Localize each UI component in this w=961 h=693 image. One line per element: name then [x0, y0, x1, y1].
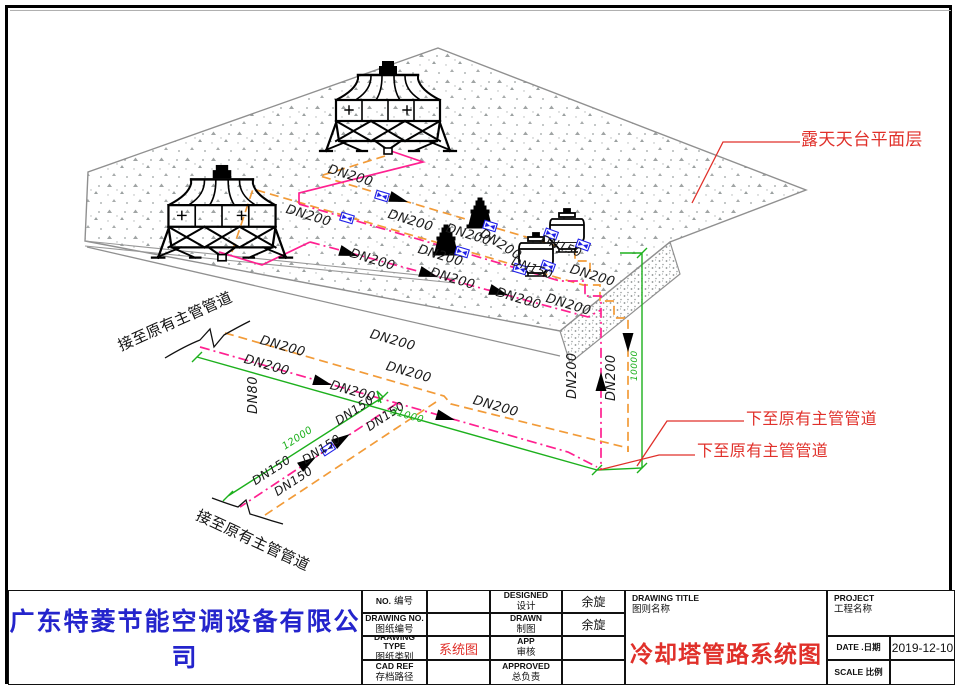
drawing-no-value: [427, 613, 490, 636]
cad-ref-value: [427, 660, 490, 685]
project-cell: PROJECT 工程名称: [827, 590, 955, 636]
drawing-no-label: DRAWING NO. 图纸编号: [362, 613, 427, 636]
date-label: DATE .日期: [827, 636, 890, 660]
pipe-break-symbol: [165, 321, 283, 524]
drawing-title-value: 冷却塔管路系统图: [626, 635, 826, 669]
no-label: NO. 编号: [362, 590, 427, 613]
approved-label: APPROVED 总负责: [490, 660, 562, 685]
drawing-title-cell: DRAWING TITLE 图则名称 冷却塔管路系统图: [625, 590, 827, 685]
drawing-type-label: DRAWING TYPE 图纸类别: [362, 636, 427, 660]
date-value: 2019-12-10: [890, 636, 955, 660]
designed-value: 余旋: [562, 590, 625, 613]
designed-label: DESIGNED 设计: [490, 590, 562, 613]
drawn-value: 余旋: [562, 613, 625, 636]
scale-value: [890, 660, 955, 685]
company-name: 广东特菱节能空调设备有限公司: [8, 590, 362, 685]
approved-value: [562, 660, 625, 685]
app-value: [562, 636, 625, 660]
drawn-label: DRAWN 制图: [490, 613, 562, 636]
scale-label: SCALE 比例: [827, 660, 890, 685]
drawing-type-value: 系统图: [427, 636, 490, 660]
piping-isometric-drawing: [0, 0, 961, 590]
no-value: [427, 590, 490, 613]
app-label: APP 审核: [490, 636, 562, 660]
cad-sheet: { "title_block": { "company": "广东特菱节能空调设…: [0, 0, 961, 693]
cad-ref-label: CAD REF 存档路径: [362, 660, 427, 685]
